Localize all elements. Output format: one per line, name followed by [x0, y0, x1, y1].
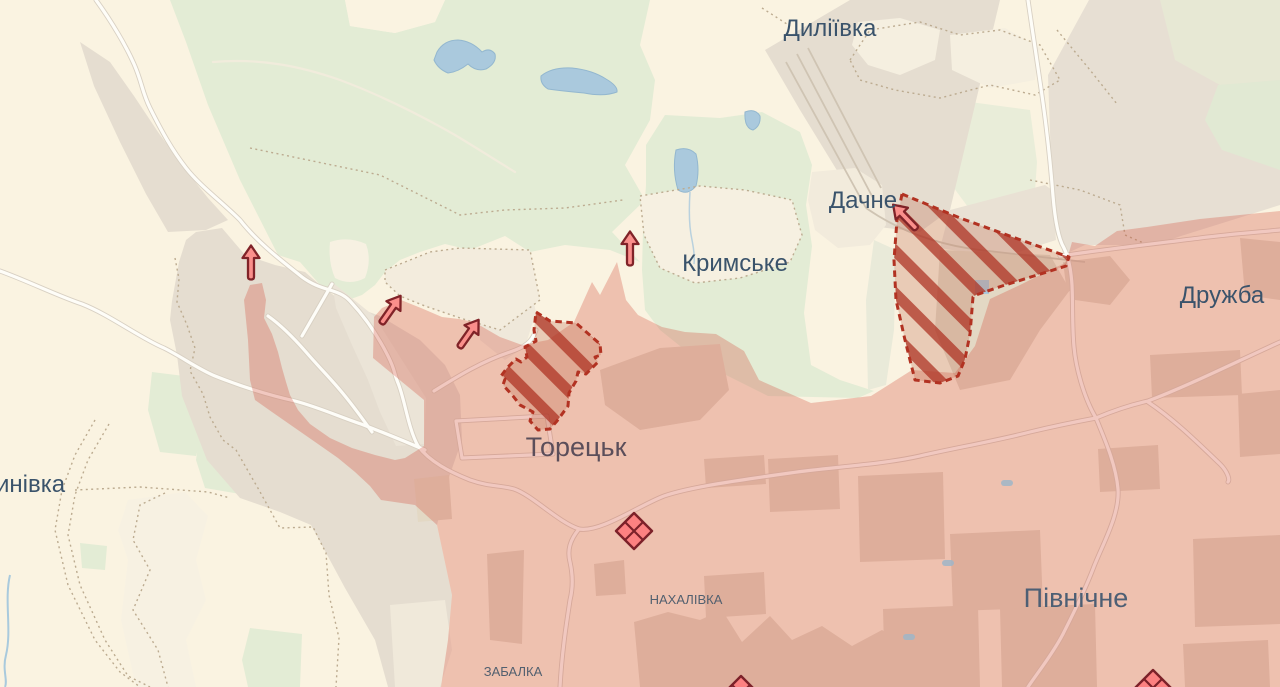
svg-text:Дачне: Дачне — [829, 187, 897, 214]
svg-text:Дружба: Дружба — [1180, 282, 1265, 309]
svg-text:Кримське: Кримське — [682, 250, 788, 277]
svg-text:Північне: Північне — [1024, 583, 1129, 613]
svg-text:Диліївка: Диліївка — [784, 15, 877, 42]
svg-text:ЗАБАЛКА: ЗАБАЛКА — [484, 664, 543, 679]
svg-text:инівка: инівка — [0, 471, 66, 498]
svg-text:НАХАЛІВКА: НАХАЛІВКА — [650, 592, 723, 607]
svg-text:Торецьк: Торецьк — [526, 432, 627, 462]
